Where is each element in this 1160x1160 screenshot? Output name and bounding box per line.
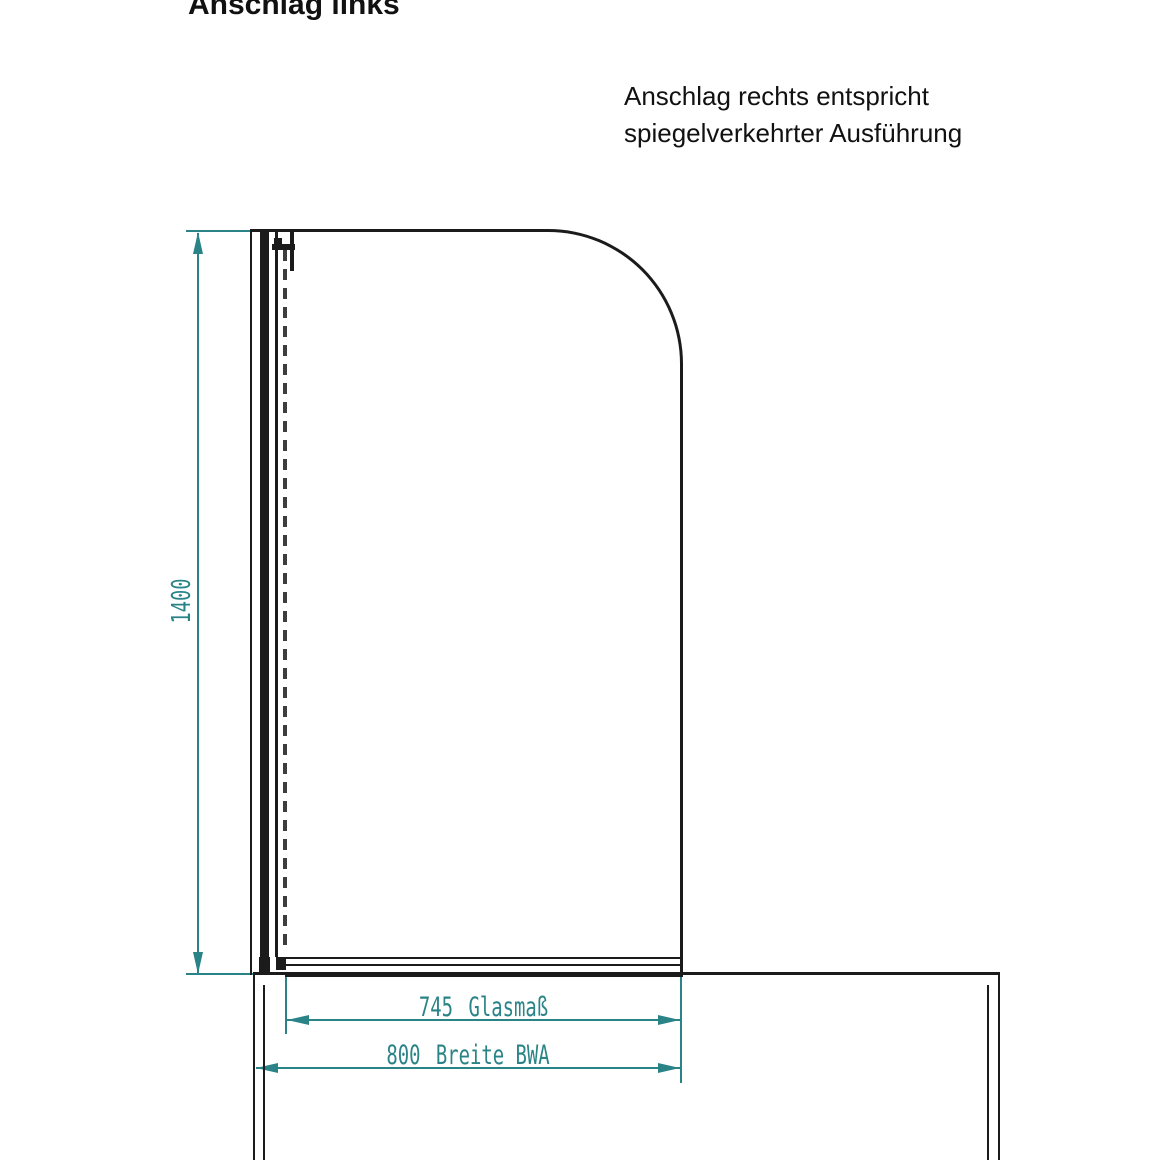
dimension-label-height: 1400 xyxy=(167,558,195,644)
dimension-label-overall-width: 800Breite BWA xyxy=(320,1040,617,1071)
mirror-note: Anschlag rechts entspricht spiegelverkeh… xyxy=(624,78,962,152)
overall-width-value: 800 xyxy=(386,1040,420,1071)
bottom-clamp-block xyxy=(259,957,270,972)
technical-drawing-page: Anschlag links Anschlag rechts entsprich… xyxy=(0,0,1160,1160)
wall-profile-inner-line xyxy=(275,231,278,957)
dimension-arrow-right-icon xyxy=(658,1015,680,1025)
drawing-title: Anschlag links xyxy=(188,0,400,20)
dimension-line-height xyxy=(197,233,199,973)
bathtub-right-outer-wall xyxy=(998,972,1000,1160)
bathtub-left-outer-wall xyxy=(253,972,255,1160)
mirror-note-line-1: Anschlag rechts entspricht xyxy=(624,78,962,115)
bathtub-right-inner-wall xyxy=(987,985,989,1160)
extension-line-glass-left xyxy=(285,977,287,1034)
bathtub-left-inner-wall xyxy=(263,985,265,1160)
bathtub-rim-line xyxy=(253,972,1000,975)
wall-profile-bar xyxy=(260,231,269,975)
glass-width-unit-label: Glasmaß xyxy=(468,992,548,1023)
dimension-arrow-left-icon xyxy=(256,1063,278,1073)
mirror-note-line-2: spiegelverkehrter Ausführung xyxy=(624,115,962,152)
glass-edge-hidden-line xyxy=(283,250,287,950)
dimension-arrow-left-icon xyxy=(287,1015,309,1025)
dimension-label-glass-width: 745Glasmaß xyxy=(346,992,621,1023)
extension-line-right xyxy=(680,977,682,1083)
glass-width-value: 745 xyxy=(419,992,453,1023)
top-clamp-stub xyxy=(290,231,294,271)
dimension-arrow-right-icon xyxy=(658,1063,680,1073)
overall-width-unit-label: Breite BWA xyxy=(436,1040,550,1071)
wall-profile-outer-line xyxy=(250,231,252,975)
glass-panel-outline xyxy=(250,229,683,974)
dimension-arrow-up-icon xyxy=(193,232,203,254)
dimension-arrow-down-icon xyxy=(193,952,203,974)
